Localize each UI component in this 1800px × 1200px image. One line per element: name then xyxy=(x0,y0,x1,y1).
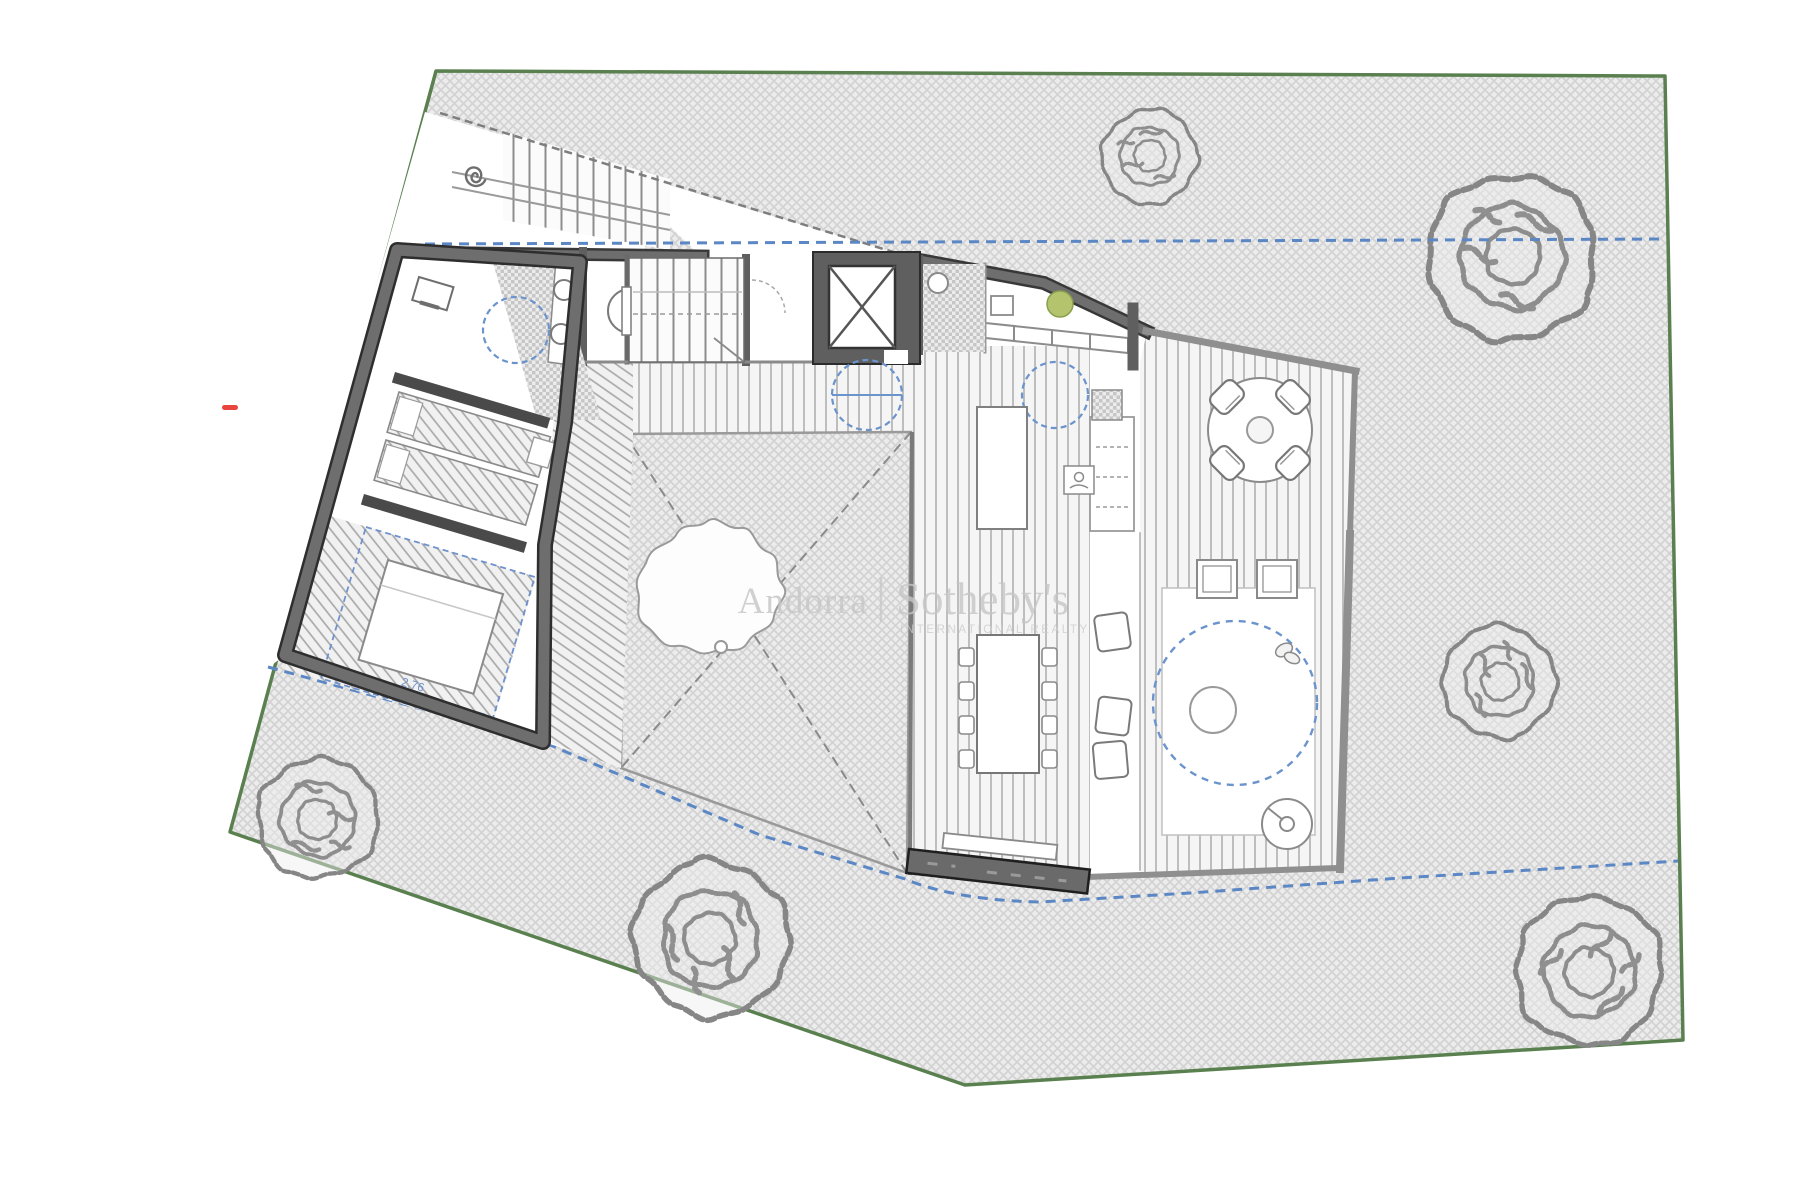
appliance-tile-square xyxy=(1092,390,1122,420)
watermark-tagline: INTERNATIONAL REALTY xyxy=(900,624,1090,636)
living-rug xyxy=(1162,588,1315,835)
ottoman xyxy=(1262,799,1312,849)
dining-table xyxy=(977,635,1039,773)
watermark-brand-left: Andorra xyxy=(738,581,868,622)
terrace-dining-set xyxy=(1207,377,1313,483)
floor-plan-page: 2.76 Andorra Sotheby's INTERNATIONAL REA… xyxy=(0,0,1800,1200)
tree-icon xyxy=(1100,108,1199,204)
courtyard-deck-band xyxy=(543,363,633,768)
red-dash-marker xyxy=(222,405,238,410)
watermark-brand-right: Sotheby's xyxy=(896,574,1069,624)
living-room xyxy=(1153,560,1317,849)
elevator xyxy=(813,252,920,364)
kitchen-counter xyxy=(1090,417,1134,531)
kitchen-sink-icon xyxy=(1064,466,1094,494)
courtyard-tree-trunk xyxy=(715,641,727,653)
plant-pot-icon xyxy=(1047,291,1073,317)
site-plan-drawing: 2.76 Andorra Sotheby's INTERNATIONAL REA… xyxy=(0,0,1800,1200)
kitchen-island xyxy=(977,407,1027,529)
interior-stairs xyxy=(629,258,744,362)
